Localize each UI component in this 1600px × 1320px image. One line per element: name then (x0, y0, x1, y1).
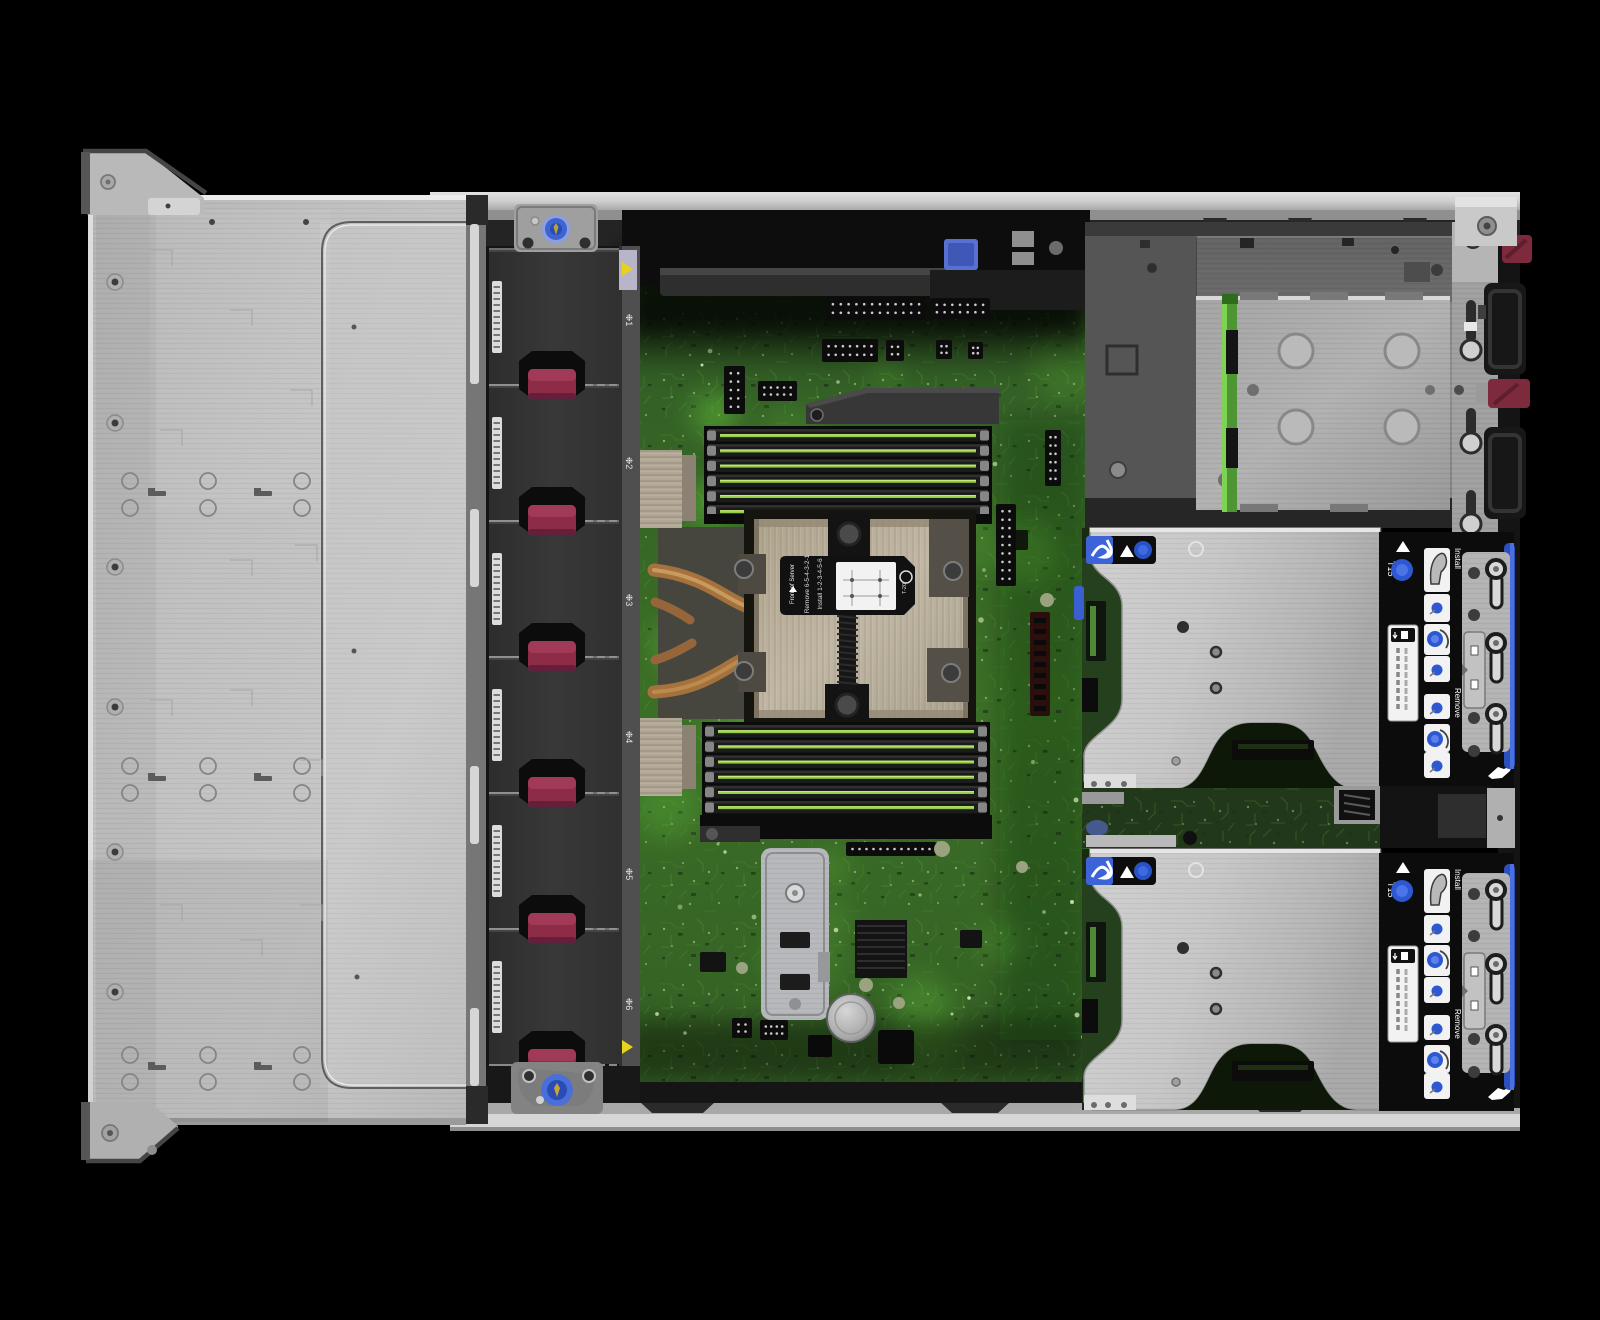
svg-text:❉2: ❉2 (624, 457, 634, 470)
svg-text:❉1: ❉1 (624, 314, 634, 327)
svg-text:❉6: ❉6 (624, 998, 634, 1011)
svg-text:Install: Install (1453, 548, 1462, 569)
svg-text:Remove: Remove (1453, 688, 1462, 718)
svg-text:T-20: T-20 (902, 583, 908, 594)
svg-text:Install: Install (1453, 869, 1462, 890)
svg-text:❉3: ❉3 (624, 594, 634, 607)
svg-text:Remove 6-5-4-3-2-1: Remove 6-5-4-3-2-1 (804, 554, 811, 613)
svg-text:Front of Server: Front of Server (790, 564, 796, 604)
svg-text:❉4: ❉4 (624, 731, 634, 744)
svg-text:❉5: ❉5 (624, 868, 634, 881)
svg-text:Install 1-2-3-4-5-6: Install 1-2-3-4-5-6 (817, 558, 824, 610)
svg-text:Remove: Remove (1453, 1009, 1462, 1039)
